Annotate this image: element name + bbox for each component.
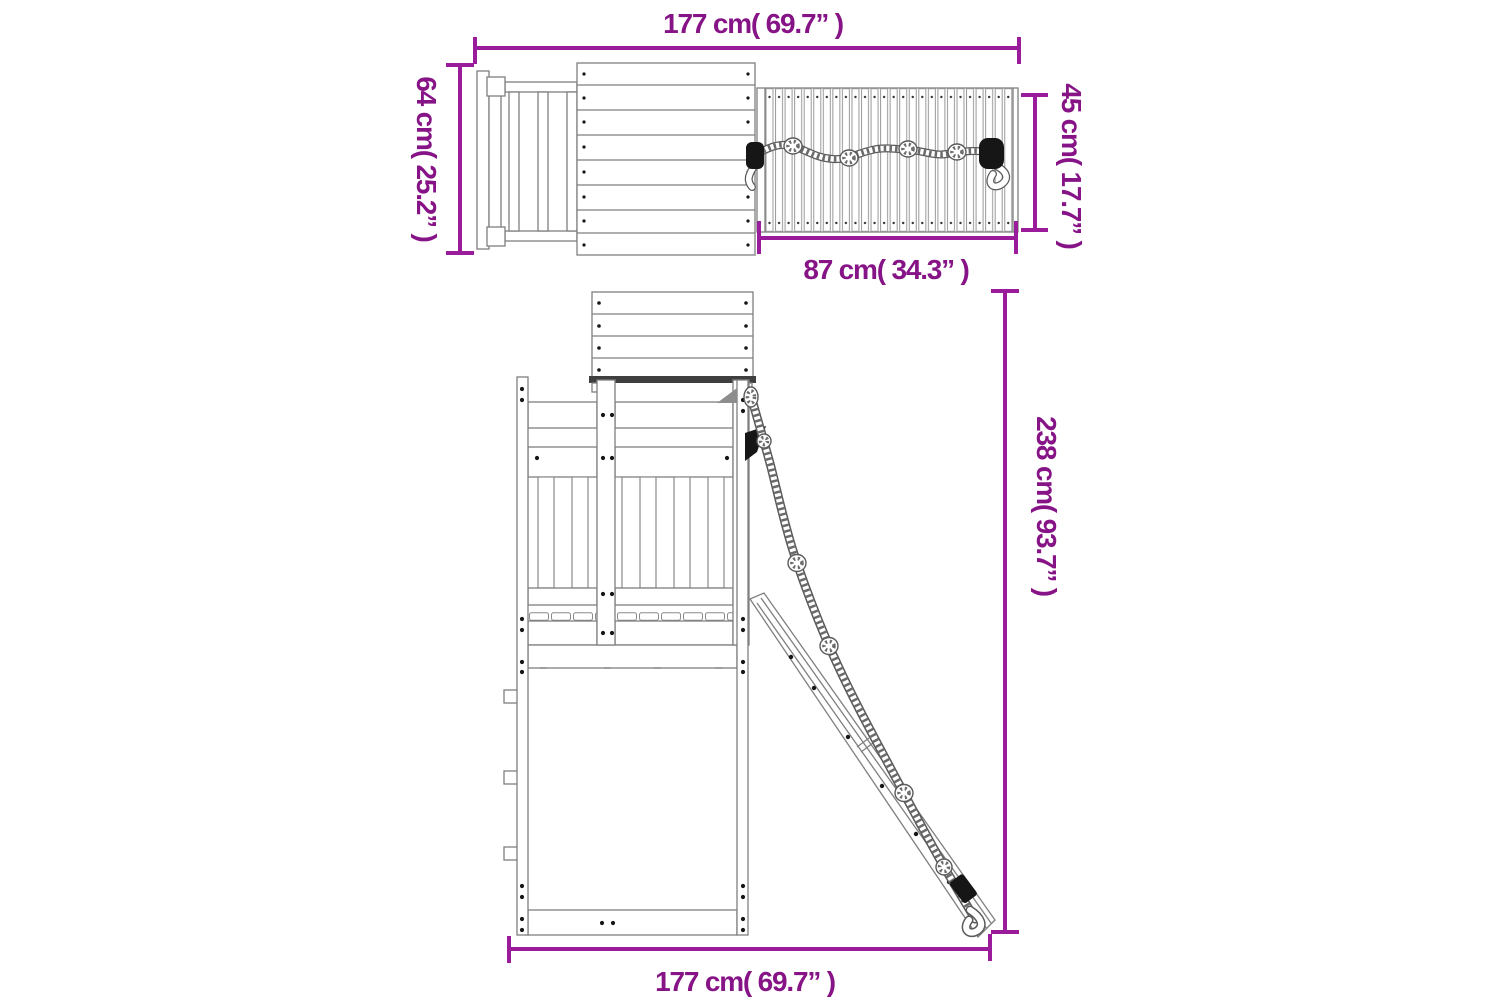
railing-balusters-right — [615, 477, 735, 588]
anchor-tab — [504, 847, 518, 860]
dim-total-height-label: 238 cm( 93.7” ) — [1032, 416, 1060, 596]
roof-corner-brace — [717, 388, 737, 403]
climbing-wall-top-view — [757, 88, 1018, 232]
tower — [504, 377, 766, 935]
dim-tick-left — [473, 37, 477, 64]
dim-tick-top — [446, 63, 474, 67]
dim-base-width-label: 177 cm( 69.7” ) — [655, 968, 835, 996]
anchor-tab — [504, 771, 518, 784]
dim-top-width-label: 177 cm( 69.7” ) — [663, 10, 843, 38]
platform-top-view — [577, 63, 755, 255]
railing-balusters-left — [530, 477, 597, 588]
dim-line — [458, 63, 462, 255]
tower-post-right — [737, 380, 748, 935]
dim-line — [1003, 291, 1007, 934]
roof — [589, 292, 756, 392]
dim-climb-wall-width-label: 87 cm( 34.3” ) — [803, 256, 968, 284]
dim-climb-wall-height-label: 45 cm( 17.7” ) — [1057, 83, 1085, 248]
dim-tick-bottom — [446, 251, 474, 255]
floor-planks-right — [615, 612, 733, 621]
dim-tick-bottom — [991, 930, 1019, 934]
dim-tick-right — [1017, 37, 1021, 64]
dim-tick-top — [991, 289, 1019, 293]
dim-line — [473, 46, 1021, 50]
dim-line — [757, 236, 1018, 240]
dim-tick-left — [507, 936, 511, 963]
dimension-diagram: 177 cm( 69.7” ) 64 cm( 25.2” ) 45 cm( 17… — [0, 0, 1500, 1000]
dim-tick-bottom — [1021, 228, 1048, 232]
tower-post-left — [517, 377, 528, 935]
floor-planks-left — [528, 612, 597, 621]
line-art-drawing — [0, 0, 1500, 1000]
anchor-tab — [504, 690, 518, 703]
dim-tick-left — [757, 221, 761, 254]
roof-post-left — [597, 380, 615, 645]
dim-tick-top — [1021, 93, 1048, 97]
dim-line — [509, 947, 992, 951]
side-view — [504, 292, 995, 937]
dim-ladder-depth-label: 64 cm( 25.2” ) — [412, 76, 440, 241]
top-view — [477, 63, 1018, 255]
dim-line — [1033, 93, 1037, 232]
rope-end-cap-right — [979, 138, 1004, 169]
dim-tick-right — [1014, 221, 1018, 254]
rope-end-cap-left — [746, 142, 764, 169]
ladder-top-view — [477, 71, 577, 249]
dim-tick-right — [988, 934, 992, 961]
